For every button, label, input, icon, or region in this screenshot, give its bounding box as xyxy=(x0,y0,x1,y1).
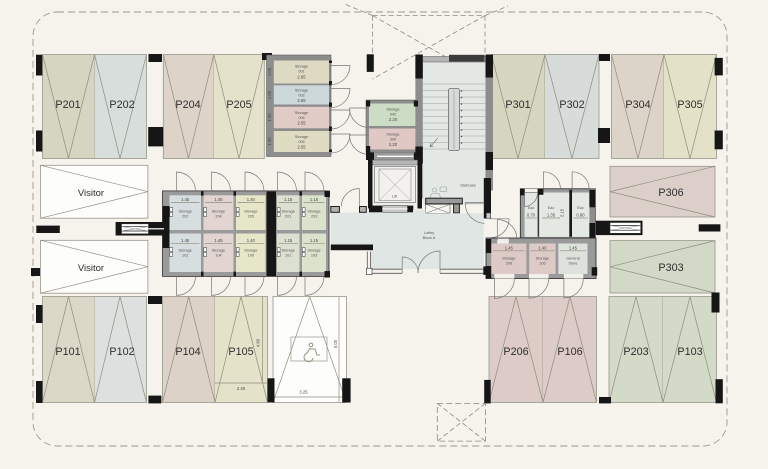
svg-text:P203: P203 xyxy=(623,346,648,358)
svg-text:1.15: 1.15 xyxy=(284,197,293,202)
svg-text:Storage: Storage xyxy=(295,65,308,69)
svg-text:106: 106 xyxy=(539,262,545,266)
svg-text:1.00: 1.00 xyxy=(267,90,272,99)
svg-text:2.20: 2.20 xyxy=(389,142,398,147)
svg-text:203: 203 xyxy=(311,215,317,219)
svg-text:1.15: 1.15 xyxy=(310,197,319,202)
svg-text:P304: P304 xyxy=(625,99,650,111)
svg-text:Storage: Storage xyxy=(295,135,308,139)
svg-text:4.80: 4.80 xyxy=(256,338,261,347)
svg-text:042: 042 xyxy=(390,112,396,116)
svg-text:Staircase: Staircase xyxy=(460,184,476,188)
svg-text:Storage: Storage xyxy=(244,209,257,213)
svg-text:2.20: 2.20 xyxy=(389,117,398,122)
svg-text:General: General xyxy=(566,257,580,261)
svg-text:103: 103 xyxy=(311,254,317,258)
svg-text:Eac: Eac xyxy=(528,206,535,210)
svg-text:Storage: Storage xyxy=(295,111,308,115)
svg-text:5.00: 5.00 xyxy=(333,339,338,348)
svg-text:1.45: 1.45 xyxy=(214,238,223,243)
svg-text:P303: P303 xyxy=(658,262,683,274)
svg-text:1.40: 1.40 xyxy=(247,197,256,202)
svg-text:Storage: Storage xyxy=(212,209,225,213)
svg-text:Storage: Storage xyxy=(244,248,257,252)
svg-text:P305: P305 xyxy=(677,99,702,111)
svg-text:1.15: 1.15 xyxy=(310,238,319,243)
svg-text:P206: P206 xyxy=(503,346,528,358)
svg-text:Storage: Storage xyxy=(502,257,515,261)
svg-text:Storage: Storage xyxy=(295,89,308,93)
svg-text:P302: P302 xyxy=(559,99,584,111)
svg-text:104: 104 xyxy=(215,254,221,258)
svg-text:001: 001 xyxy=(298,69,304,73)
svg-text:105: 105 xyxy=(248,254,254,258)
svg-text:1.40: 1.40 xyxy=(247,238,256,243)
svg-text:Storage: Storage xyxy=(179,248,192,252)
svg-text:P103: P103 xyxy=(677,346,702,358)
svg-text:002: 002 xyxy=(298,93,304,97)
svg-text:P105: P105 xyxy=(228,346,253,358)
svg-text:306: 306 xyxy=(390,137,396,141)
svg-text:Storage: Storage xyxy=(282,209,295,213)
svg-text:1.45: 1.45 xyxy=(214,197,223,202)
svg-text:Lobby: Lobby xyxy=(424,231,434,235)
svg-text:P306: P306 xyxy=(658,187,683,199)
svg-text:1.00: 1.00 xyxy=(267,113,272,122)
svg-text:P104: P104 xyxy=(175,346,200,358)
svg-text:Storage: Storage xyxy=(386,133,399,137)
svg-text:2.40: 2.40 xyxy=(237,386,246,391)
svg-text:2.55: 2.55 xyxy=(297,98,306,103)
svg-text:Storage: Storage xyxy=(386,108,399,112)
svg-text:1.45: 1.45 xyxy=(181,197,190,202)
svg-text:1.45: 1.45 xyxy=(181,238,190,243)
svg-text:Eac: Eac xyxy=(577,206,584,210)
svg-text:1.35: 1.35 xyxy=(547,213,556,218)
svg-text:2.15: 2.15 xyxy=(560,208,565,217)
svg-text:0.70: 0.70 xyxy=(527,213,536,218)
svg-text:Visitor: Visitor xyxy=(78,263,104,274)
svg-text:102: 102 xyxy=(182,254,188,258)
svg-text:205: 205 xyxy=(248,215,254,219)
svg-text:P102: P102 xyxy=(109,346,134,358)
svg-text:P201: P201 xyxy=(55,99,80,111)
svg-text:P301: P301 xyxy=(505,99,530,111)
svg-text:Storage: Storage xyxy=(536,257,549,261)
svg-text:1.15: 1.15 xyxy=(284,238,293,243)
svg-text:204: 204 xyxy=(215,215,221,219)
svg-text:1.00: 1.00 xyxy=(267,137,272,146)
svg-text:Storage: Storage xyxy=(307,248,320,252)
svg-text:2.55: 2.55 xyxy=(297,145,306,150)
svg-text:Visitor: Visitor xyxy=(78,188,104,199)
svg-text:P101: P101 xyxy=(55,346,80,358)
svg-text:3.25: 3.25 xyxy=(299,390,308,395)
svg-text:P106: P106 xyxy=(557,346,582,358)
svg-text:P204: P204 xyxy=(175,99,200,111)
svg-text:Storage: Storage xyxy=(307,209,320,213)
svg-text:Storage: Storage xyxy=(179,209,192,213)
svg-text:206: 206 xyxy=(506,262,512,266)
svg-text:2.65: 2.65 xyxy=(297,75,306,80)
svg-text:Block A: Block A xyxy=(423,236,436,240)
svg-text:Store: Store xyxy=(568,262,577,266)
svg-text:004: 004 xyxy=(298,116,304,120)
svg-text:1.40: 1.40 xyxy=(538,245,547,250)
svg-text:1.05: 1.05 xyxy=(267,67,272,76)
svg-text:0.80: 0.80 xyxy=(576,213,585,218)
svg-text:1.45: 1.45 xyxy=(505,245,514,250)
svg-text:101: 101 xyxy=(285,254,291,258)
svg-text:2.55: 2.55 xyxy=(297,121,306,126)
svg-text:Storage: Storage xyxy=(282,248,295,252)
svg-text:Eac: Eac xyxy=(548,206,555,210)
svg-text:201: 201 xyxy=(285,215,291,219)
svg-text:1.45: 1.45 xyxy=(569,245,578,250)
svg-text:005: 005 xyxy=(298,140,304,144)
svg-text:Storage: Storage xyxy=(212,248,225,252)
svg-text:P205: P205 xyxy=(226,99,251,111)
svg-text:202: 202 xyxy=(182,215,188,219)
svg-text:P202: P202 xyxy=(109,99,134,111)
